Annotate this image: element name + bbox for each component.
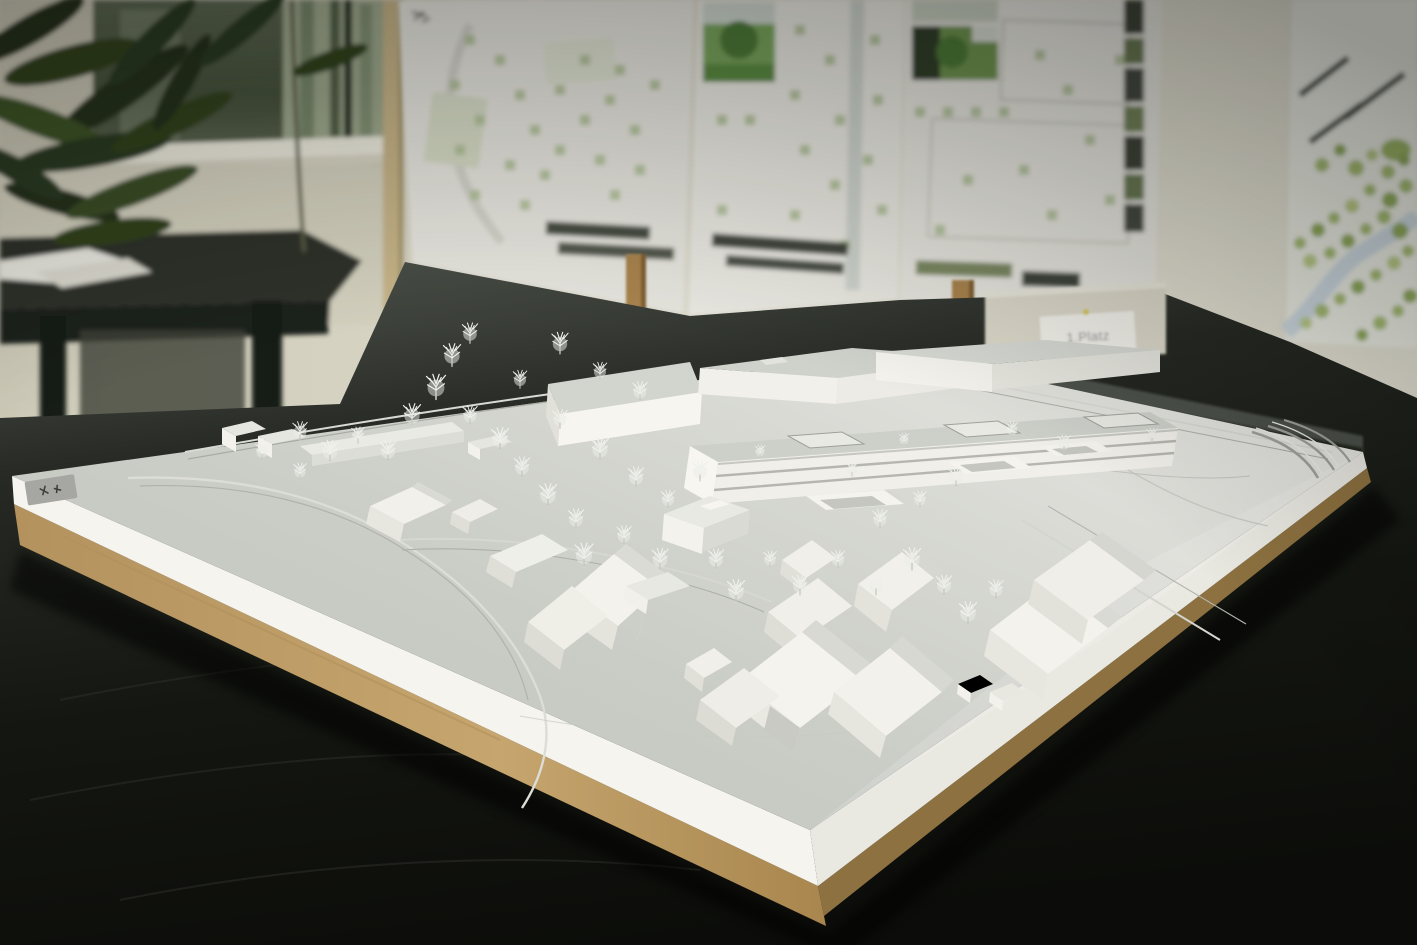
photo-scene: 1.Platz [0, 0, 1417, 945]
photo-architectural-model-scene: 1.Platz [0, 0, 1417, 945]
vignette [0, 0, 1417, 945]
